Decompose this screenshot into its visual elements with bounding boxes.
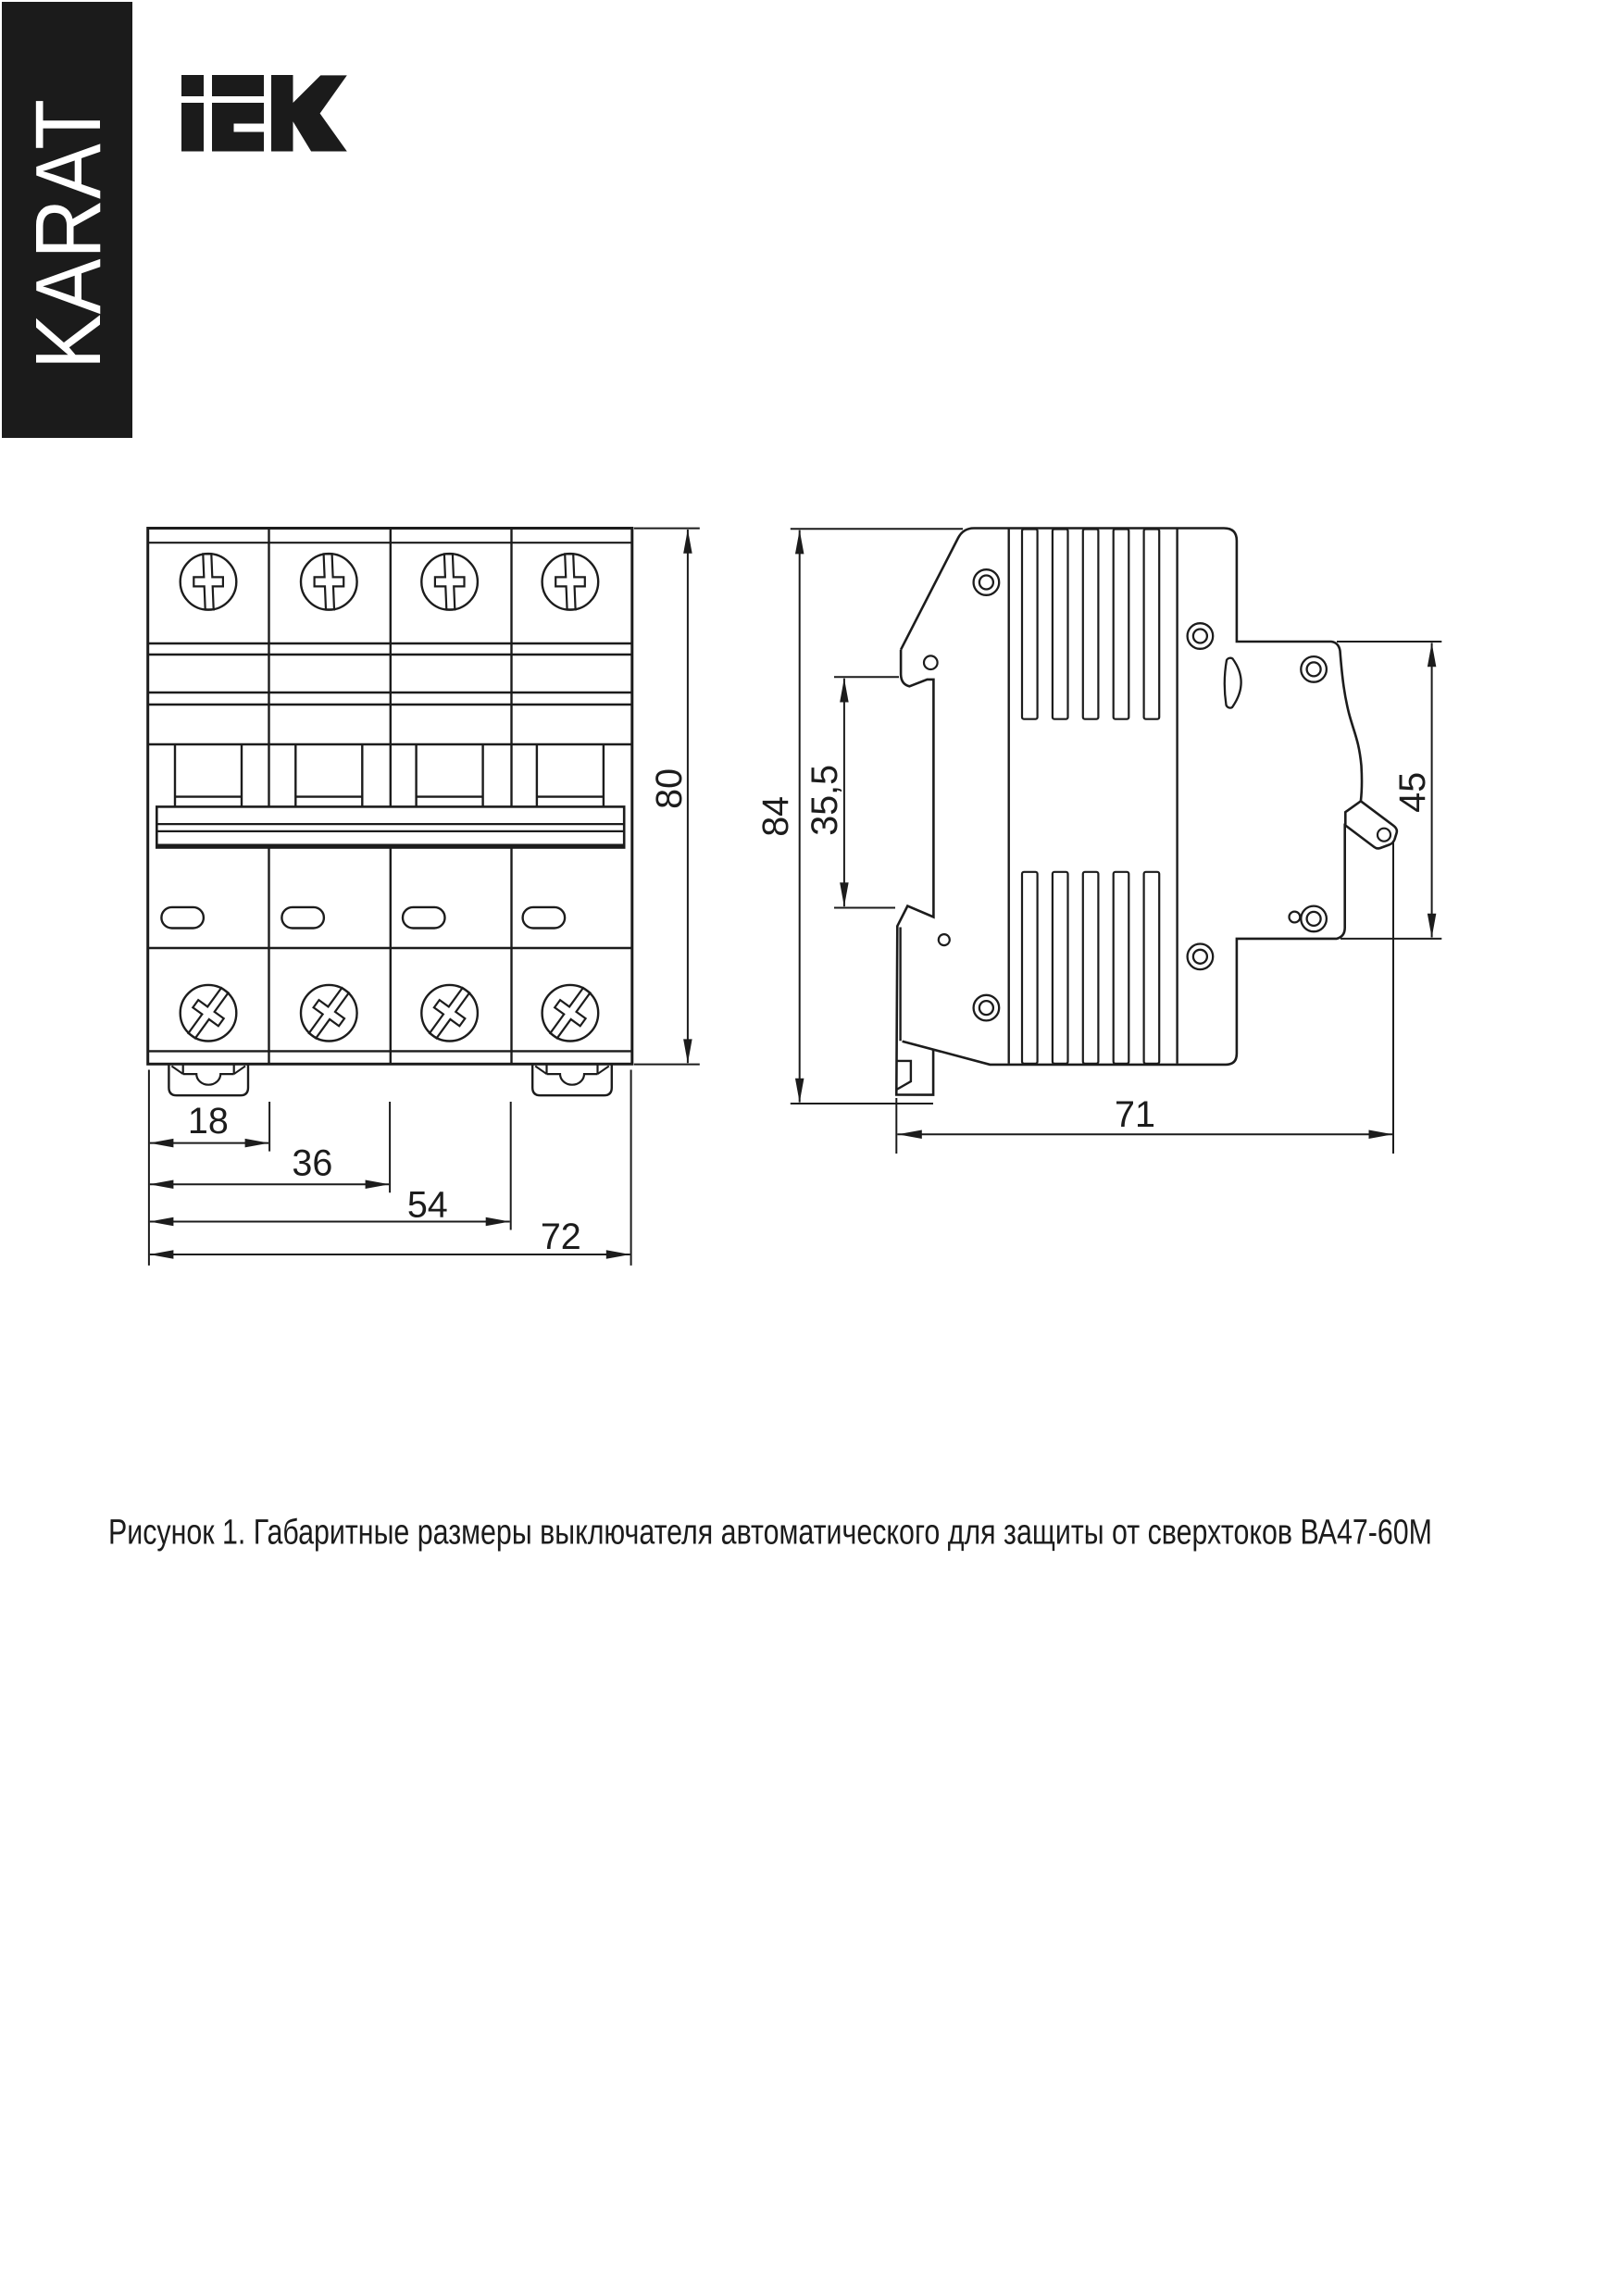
svg-text:80: 80 <box>649 768 690 809</box>
svg-text:54: 54 <box>407 1185 448 1226</box>
svg-text:KARAT: KARAT <box>17 99 120 369</box>
svg-text:35,5: 35,5 <box>804 765 845 836</box>
svg-text:Рисунок 1. Габаритные размеры: Рисунок 1. Габаритные размеры выключател… <box>108 1514 1432 1553</box>
svg-text:72: 72 <box>541 1217 581 1257</box>
svg-text:71: 71 <box>1115 1094 1155 1135</box>
svg-text:45: 45 <box>1392 772 1433 813</box>
svg-text:84: 84 <box>755 796 796 837</box>
svg-text:18: 18 <box>188 1101 229 1142</box>
svg-text:36: 36 <box>292 1142 332 1183</box>
